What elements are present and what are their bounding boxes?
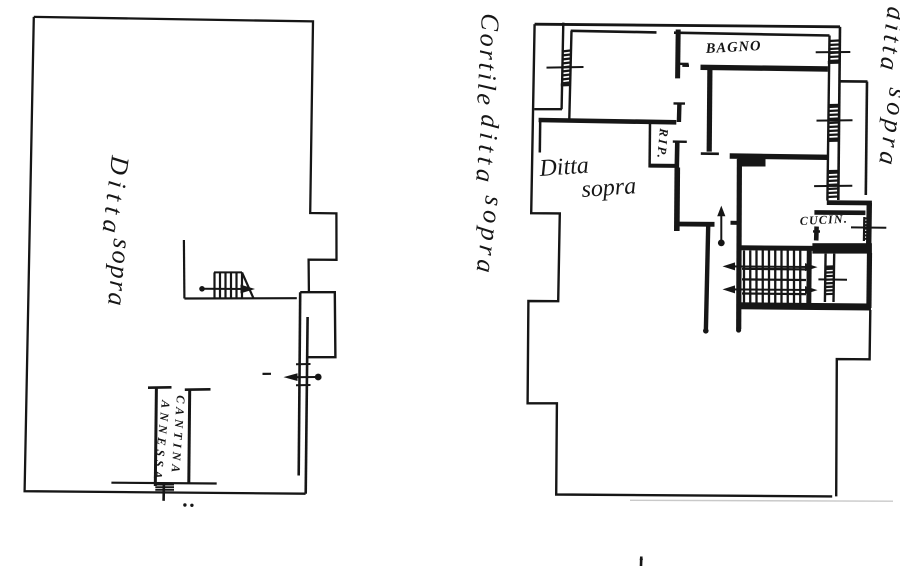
svg-text:CUCIN.: CUCIN. [799, 211, 848, 228]
svg-text:Cortile: Cortile [471, 13, 505, 109]
svg-text:BAGNO: BAGNO [704, 38, 762, 57]
svg-text:RIP.: RIP. [654, 127, 671, 161]
svg-text:sopra: sopra [581, 173, 637, 203]
svg-text:sopra: sopra [102, 237, 137, 309]
